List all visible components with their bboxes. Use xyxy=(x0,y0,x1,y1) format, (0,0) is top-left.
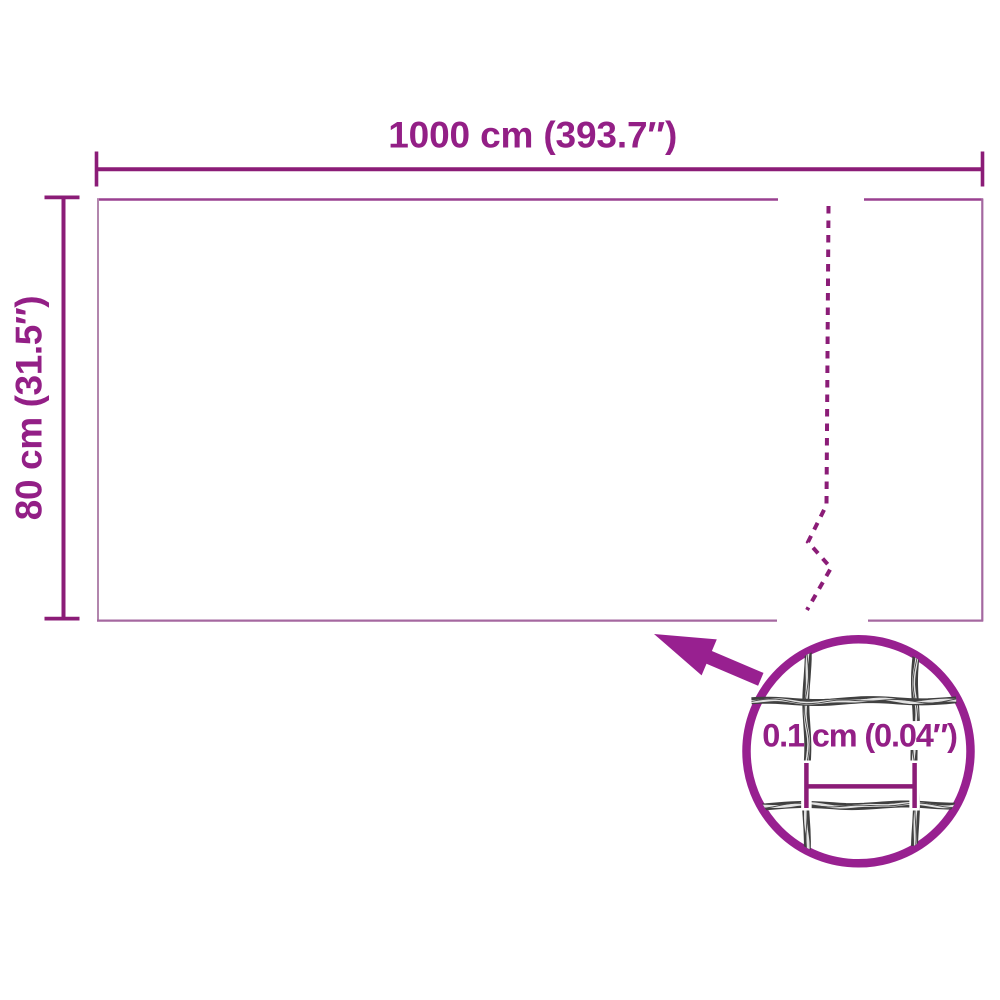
svg-text:1000 cm (393.7″): 1000 cm (393.7″) xyxy=(388,115,677,156)
svg-text:0.1 cm (0.04″): 0.1 cm (0.04″) xyxy=(762,718,957,754)
svg-text:80 cm (31.5″): 80 cm (31.5″) xyxy=(9,296,50,520)
